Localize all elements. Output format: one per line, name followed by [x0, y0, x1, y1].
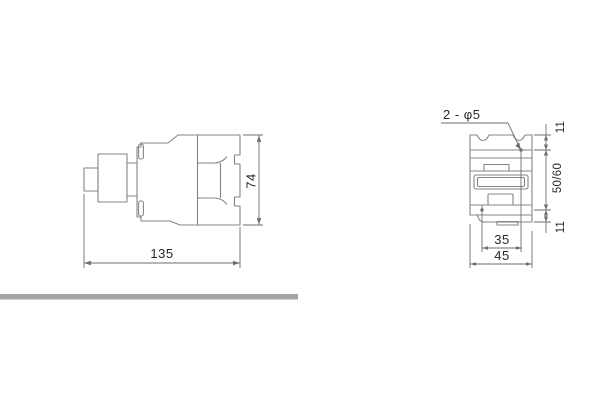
arrow-leader	[515, 142, 521, 150]
front-dim-right-lines	[534, 124, 551, 233]
side-terminal-block	[84, 168, 98, 191]
side-view-outline	[84, 135, 240, 225]
side-din-notch-bottom	[198, 198, 227, 204]
arrow-right	[233, 261, 240, 265]
holes-callout-label: 2 - φ5	[443, 107, 480, 122]
front-aux-recess	[488, 194, 513, 205]
front-view-labels: 2 - φ5 11 50/60 11 35 45	[443, 107, 567, 263]
dim-label-height: 74	[244, 173, 259, 188]
arrow-up	[544, 210, 548, 216]
arrow-up	[257, 135, 261, 142]
dim-label-top-offset: 11	[555, 121, 567, 134]
technical-drawing-canvas: 135 74	[0, 0, 600, 400]
dim-label-bottom-offset: 11	[555, 221, 567, 234]
front-rail-clip-tab	[497, 222, 518, 226]
dim-label-hole-spacing: 35	[494, 232, 509, 247]
bottom-divider-bar	[0, 294, 298, 300]
side-screw-slot-bottom	[139, 201, 144, 216]
arrow-right	[526, 262, 532, 266]
arrow-left	[482, 246, 488, 250]
front-view: 2 - φ5 11 50/60 11 35 45	[441, 107, 567, 268]
side-view-labels: 135 74	[150, 173, 258, 261]
front-raised-tab	[484, 165, 509, 172]
arrow-up	[544, 135, 548, 141]
side-neck-lines	[127, 163, 137, 196]
front-window-inner	[478, 178, 525, 187]
dim-label-length: 135	[150, 246, 173, 261]
arrow-down	[544, 145, 548, 151]
dim-label-width: 45	[494, 248, 509, 263]
side-view: 135 74	[84, 135, 263, 268]
arrow-left	[84, 261, 91, 265]
dim-label-vertical-spacing: 50/60	[552, 163, 564, 193]
holes-callout-arrow	[515, 142, 521, 150]
arrow-down	[544, 205, 548, 211]
arrow-up	[544, 150, 548, 156]
side-din-notch-top	[198, 157, 227, 163]
drawing-page: 135 74	[0, 0, 600, 400]
side-coil-block	[98, 154, 127, 202]
front-view-outline	[470, 135, 532, 225]
arrow-left	[470, 262, 476, 266]
front-body	[470, 135, 532, 222]
arrow-down	[257, 218, 261, 225]
side-main-body	[137, 135, 240, 225]
arrow-down	[544, 217, 548, 223]
